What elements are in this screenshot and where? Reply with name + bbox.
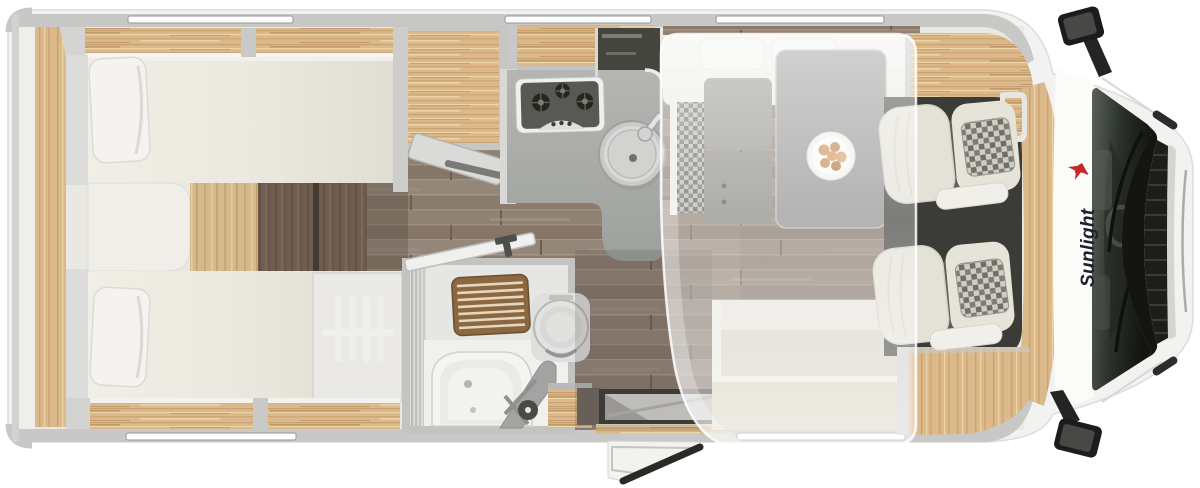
svg-text:Sunlight: Sunlight — [1078, 208, 1099, 287]
